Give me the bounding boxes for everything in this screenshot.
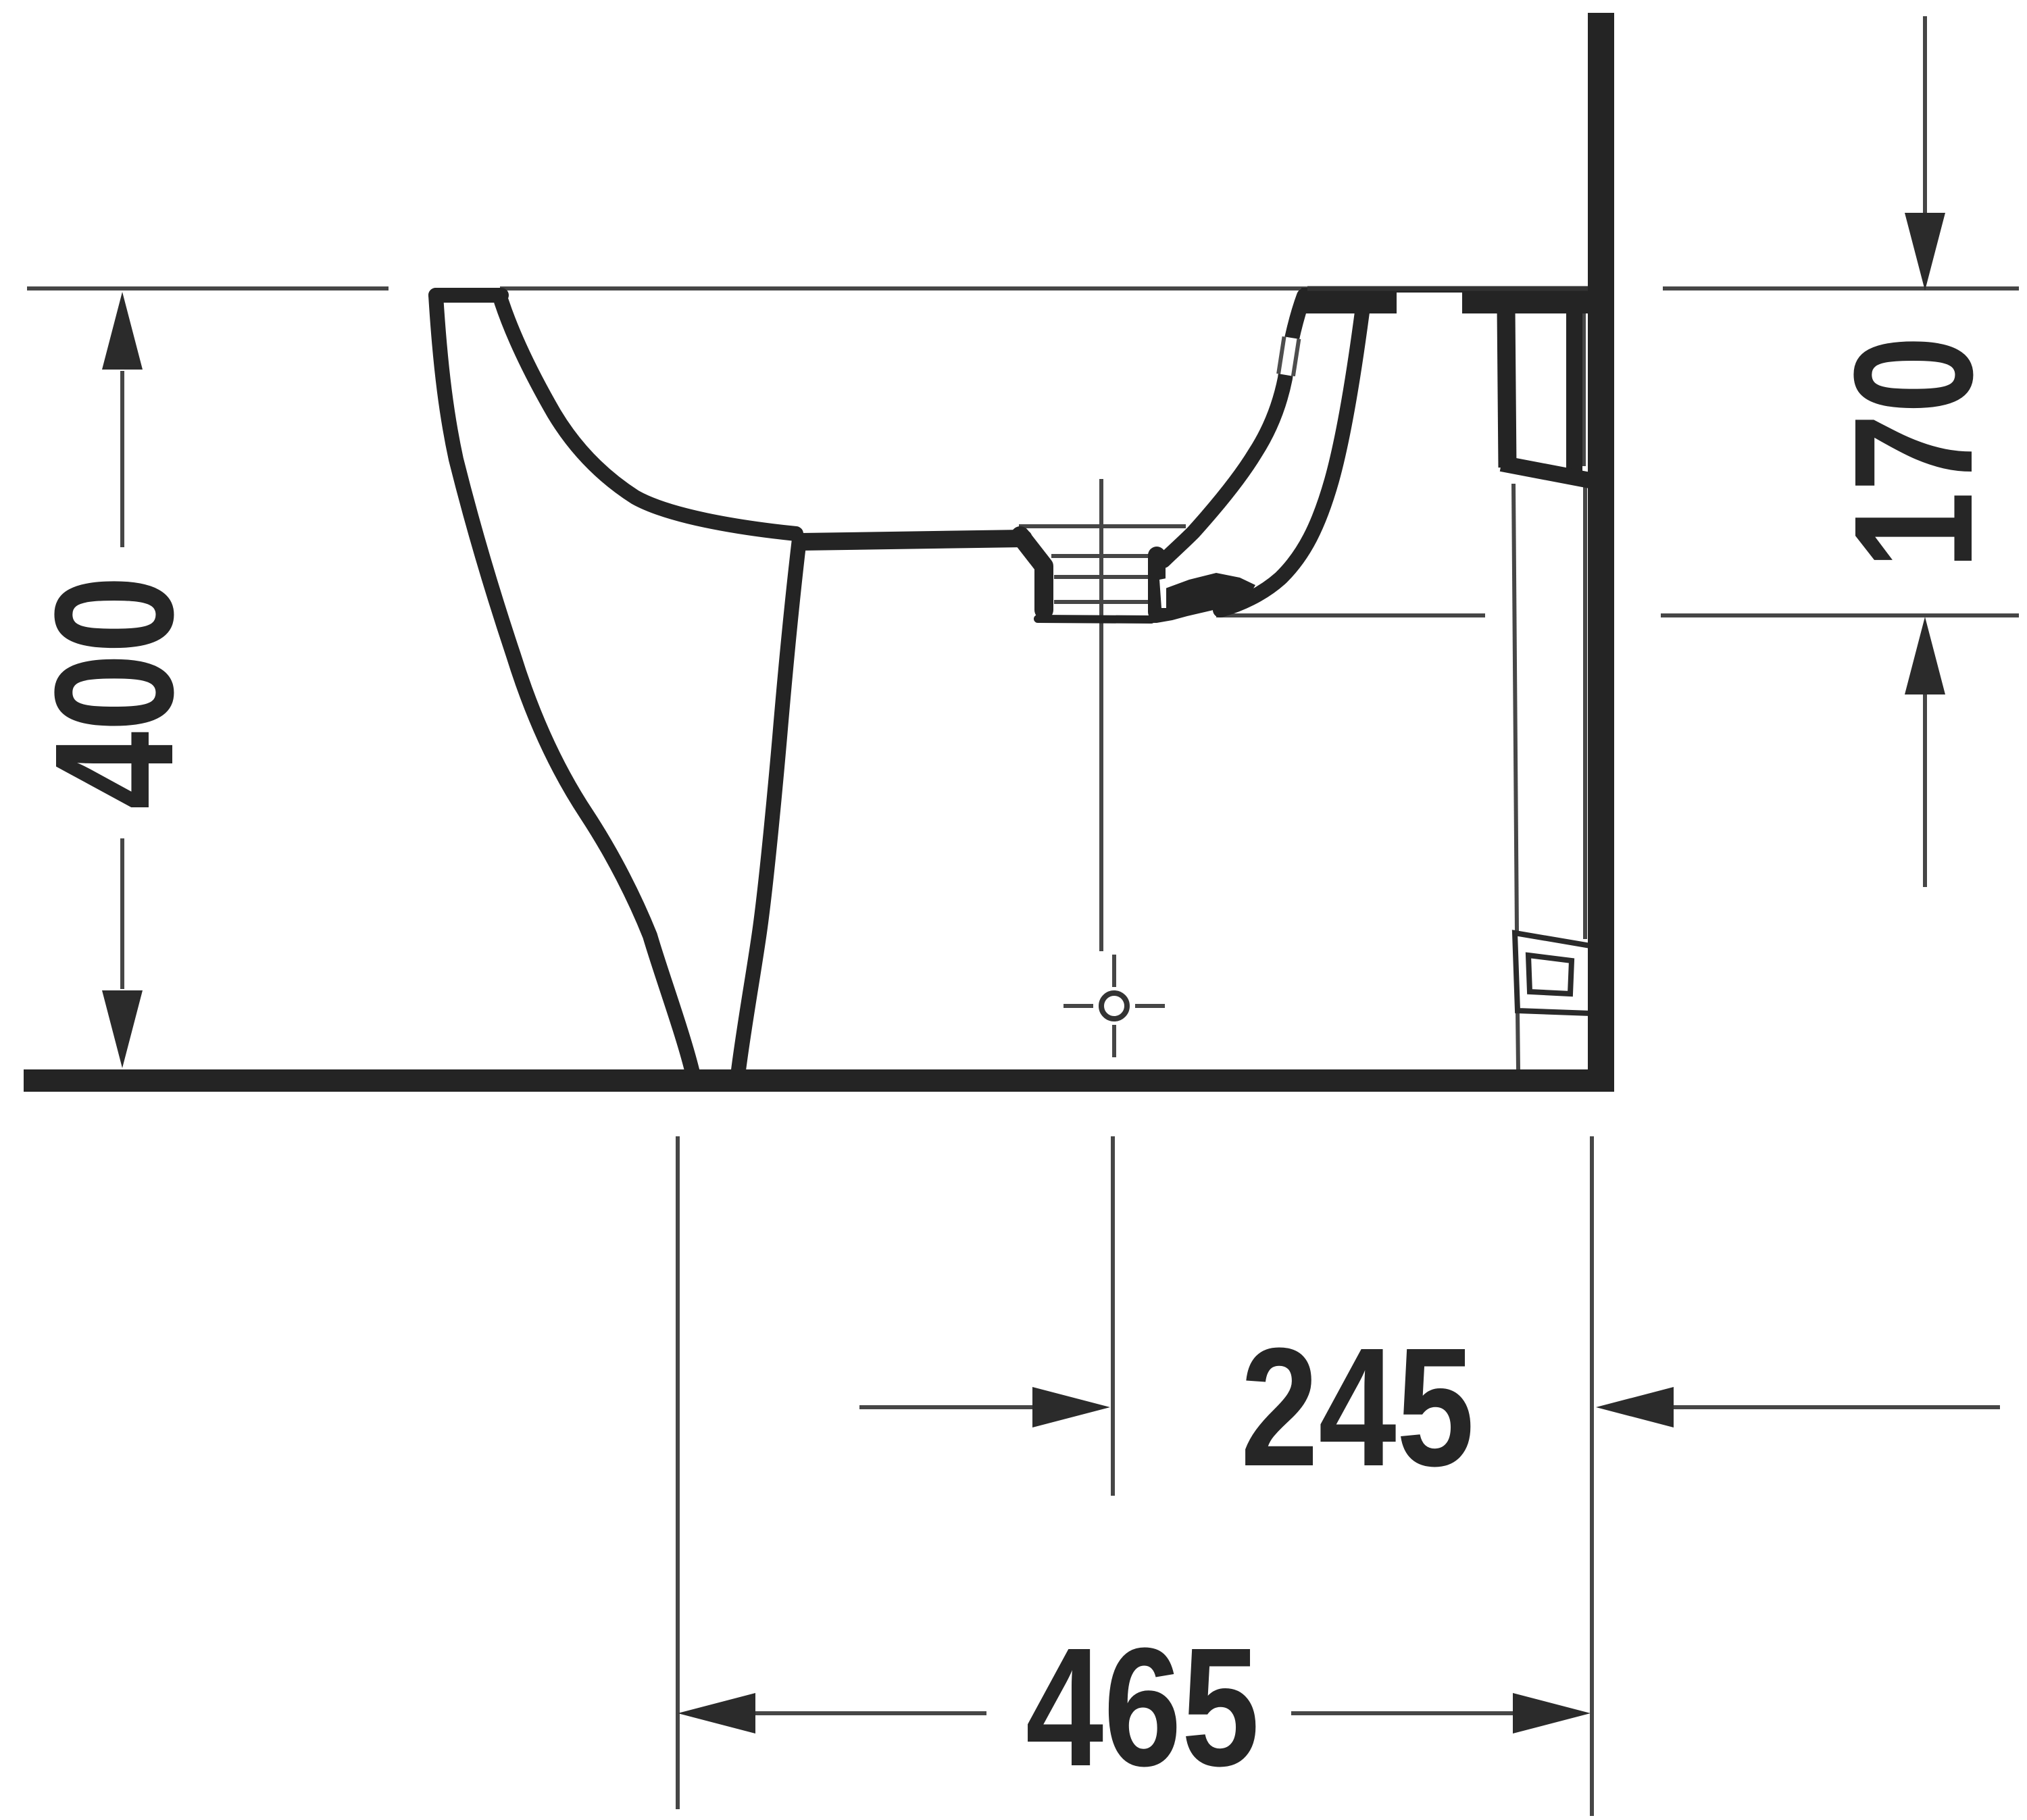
svg-text:245: 245 bbox=[1241, 1313, 1474, 1502]
svg-text:400: 400 bbox=[20, 576, 209, 809]
svg-text:170: 170 bbox=[1819, 336, 2008, 570]
svg-text:465: 465 bbox=[1026, 1613, 1259, 1802]
